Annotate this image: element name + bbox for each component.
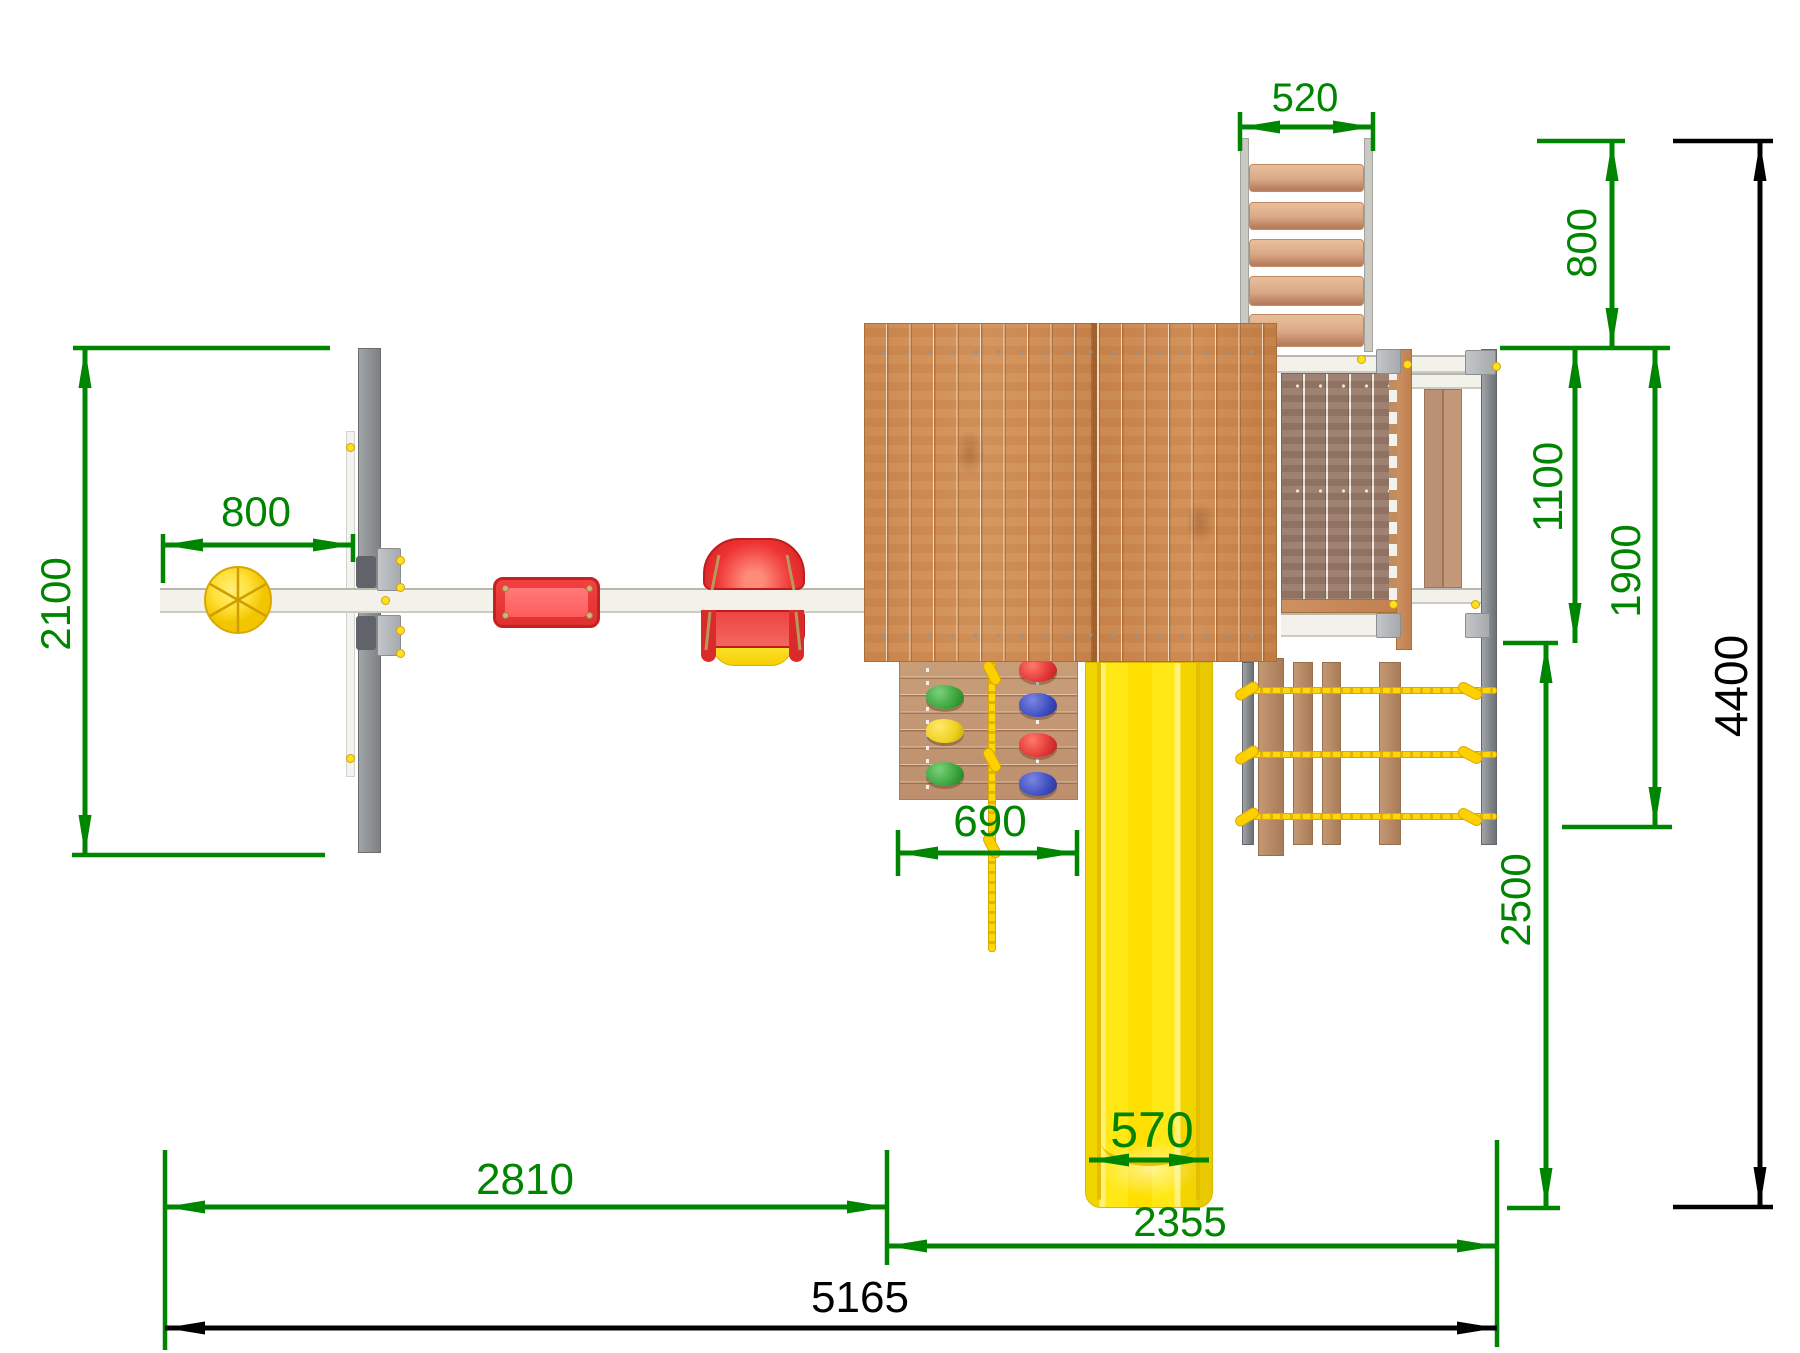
dim-label-total-length: 5165 <box>811 1276 909 1320</box>
dimension-lines <box>0 0 1800 1353</box>
dim-label-wall-width: 690 <box>953 800 1026 844</box>
dim-label-deck-depth: 1100 <box>1527 442 1569 532</box>
dim-label-tower-length: 2355 <box>1133 1201 1226 1243</box>
dim-label-slide-width: 570 <box>1110 1105 1193 1155</box>
playground-dimension-drawing: 520 800 1100 1900 4400 2500 2100 800 690… <box>0 0 1800 1353</box>
dim-label-hoop-offset: 800 <box>221 491 291 533</box>
dim-label-upper-offset: 800 <box>1561 208 1603 278</box>
dim-label-swing-length: 2810 <box>476 1158 574 1202</box>
dim-label-total-depth: 4400 <box>1708 635 1754 737</box>
dim-label-ladder-width: 520 <box>1272 78 1339 118</box>
dim-label-lower-offset: 2500 <box>1495 853 1537 946</box>
dim-label-tower-depth: 1900 <box>1605 524 1647 617</box>
dim-label-swing-depth: 2100 <box>35 557 77 650</box>
